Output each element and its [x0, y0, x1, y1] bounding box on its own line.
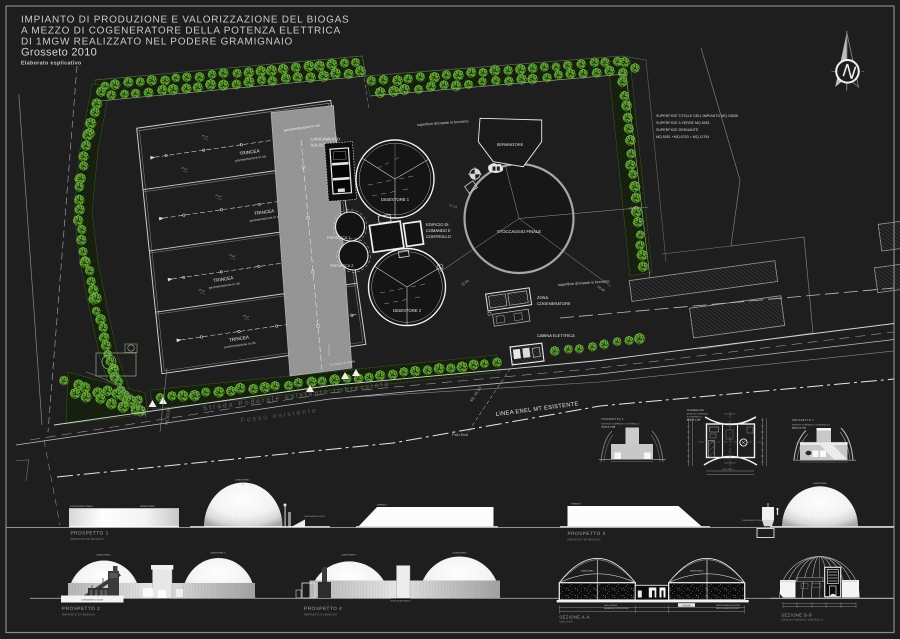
svg-text:EDIFICIO DI: EDIFICIO DI	[426, 222, 448, 227]
svg-text:COGENERATORE: COGENERATORE	[537, 301, 571, 306]
svg-text:SUPERFICIE A VERDE MQ.5051: SUPERFICIE A VERDE MQ.5051	[656, 121, 710, 125]
svg-text:DIGESTORE 1: DIGESTORE 1	[453, 552, 468, 555]
svg-text:ARIA INTERNA: ARIA INTERNA	[604, 604, 618, 607]
svg-text:DIGESTORE: DIGESTORE	[814, 482, 827, 485]
svg-text:MEMBRANA DOPPIA EPDM: MEMBRANA DOPPIA EPDM	[604, 607, 629, 610]
svg-text:CARICAMENTO: CARICAMENTO	[311, 137, 340, 142]
svg-text:IMPIANTO DI BIOGAS: IMPIANTO DI BIOGAS	[568, 537, 601, 541]
svg-text:PROSPETTO 3: PROSPETTO 3	[568, 531, 606, 536]
svg-text:SUPERFICIE TOTALE DELL'IMPIAN: SUPERFICIE TOTALE DELL'IMPIANTO MQ.20836	[656, 114, 738, 118]
svg-text:IMPIANTO DI BIOGAS: IMPIANTO DI BIOGAS	[71, 537, 104, 541]
svg-text:PROSPETTO 1: PROSPETTO 1	[71, 531, 109, 536]
svg-text:DIGESTORE 1: DIGESTORE 1	[722, 468, 734, 471]
svg-text:PROSPETTO 2: PROSPETTO 2	[62, 606, 100, 611]
svg-text:DIGESTORE 2: DIGESTORE 2	[211, 552, 226, 555]
svg-text:Grosseto 2010: Grosseto 2010	[21, 47, 97, 59]
svg-text:IMPIANTO DI BIOGAS: IMPIANTO DI BIOGAS	[304, 612, 337, 616]
svg-text:ZONA: ZONA	[537, 295, 548, 300]
svg-text:DIGESTORE 1: DIGESTORE 1	[97, 554, 112, 557]
svg-text:PLANIMETRIA: PLANIMETRIA	[687, 409, 705, 412]
svg-text:PROSPETTO 2: PROSPETTO 2	[602, 418, 624, 421]
svg-text:MQ.5051 +MQ.6703 = MQ.11754: MQ.5051 +MQ.6703 = MQ.11754	[656, 135, 709, 139]
svg-text:EDIFICIO COMANDO E CONTROLLO: EDIFICIO COMANDO E CONTROLLO	[602, 423, 640, 426]
svg-text:PROSPETTO 1: PROSPETTO 1	[792, 419, 814, 422]
svg-text:EDIFICIO COMANDO E CONTROLLO: EDIFICIO COMANDO E CONTROLLO	[781, 619, 822, 622]
svg-text:SEZIONE A-A: SEZIONE A-A	[559, 615, 590, 620]
svg-text:STOCCAGGIO FINALE: STOCCAGGIO FINALE	[70, 505, 94, 508]
svg-text:DIGESTORI: DIGESTORI	[559, 621, 572, 624]
svg-text:DIGESTORE 1: DIGESTORE 1	[724, 413, 736, 416]
svg-text:STOCCAGGIO FINALE: STOCCAGGIO FINALE	[391, 599, 412, 602]
svg-text:CARICAMENTO SOLIDI: CARICAMENTO SOLIDI	[742, 519, 763, 522]
svg-text:CARICAMENTO SOLIDI: CARICAMENTO SOLIDI	[304, 515, 325, 518]
svg-text:E CONTROLLO: E CONTROLLO	[687, 416, 703, 419]
svg-text:SEZIONE B-B: SEZIONE B-B	[781, 613, 812, 618]
svg-text:DIGESTORE 2: DIGESTORE 2	[342, 554, 357, 557]
svg-text:IMPIANTO DI BIOGAS: IMPIANTO DI BIOGAS	[62, 612, 95, 616]
svg-text:PROSPETTO 4: PROSPETTO 4	[304, 606, 342, 611]
svg-text:COMANDO E: COMANDO E	[426, 228, 451, 233]
svg-text:DIGESTORE 2: DIGESTORE 2	[724, 462, 736, 465]
svg-text:Palo Enel: Palo Enel	[452, 433, 468, 437]
svg-text:TRINCEA: TRINCEA	[571, 503, 581, 506]
svg-text:SCALA 1:100: SCALA 1:100	[792, 427, 806, 430]
svg-text:PREVASCA 2: PREVASCA 2	[330, 264, 353, 268]
svg-text:SOLIDI: SOLIDI	[311, 143, 324, 148]
svg-text:SUPERFICIE DRENANTE: SUPERFICIE DRENANTE	[656, 128, 699, 132]
svg-text:SEPARATORE: SEPARATORE	[140, 505, 155, 508]
svg-text:EDIFICIO COMANDO: EDIFICIO COMANDO	[687, 413, 709, 416]
svg-text:PREVASCA 1: PREVASCA 1	[327, 236, 350, 240]
svg-text:CONTROLLO: CONTROLLO	[426, 234, 451, 239]
svg-text:RISCALDAMENTO PARETI: RISCALDAMENTO PARETI	[716, 607, 740, 610]
svg-text:DIGESTORE 2: DIGESTORE 2	[690, 570, 704, 573]
svg-text:DIGESTORE 1: DIGESTORE 1	[581, 570, 595, 573]
svg-text:CABINA ELETTRICA: CABINA ELETTRICA	[537, 333, 575, 338]
svg-text:SEPARATORE: SEPARATORE	[497, 142, 524, 147]
svg-text:15,75: 15,75	[629, 206, 638, 211]
svg-text:LIQUAME: LIQUAME	[682, 604, 691, 607]
svg-text:CARICAMENTO SOLIDI: CARICAMENTO SOLIDI	[81, 599, 103, 602]
svg-text:STOCCAGGIO FINALE: STOCCAGGIO FINALE	[497, 229, 541, 234]
svg-text:SCALA 1:100: SCALA 1:100	[602, 426, 616, 429]
svg-text:Elaborato esplicativo: Elaborato esplicativo	[21, 60, 82, 66]
svg-text:TRINCEA: TRINCEA	[377, 504, 387, 507]
svg-text:MISCELATORE AGITATORE: MISCELATORE AGITATORE	[716, 604, 741, 607]
svg-text:DIGESTORE 2: DIGESTORE 2	[393, 308, 422, 313]
svg-text:EDIFICIO COMANDO E CONTROLLO: EDIFICIO COMANDO E CONTROLLO	[792, 424, 830, 427]
svg-text:DIGESTORE 1: DIGESTORE 1	[236, 479, 251, 482]
svg-text:A MEZZO DI COGENERATORE DELLA: A MEZZO DI COGENERATORE DELLA POTENZA EL…	[21, 25, 341, 36]
svg-text:IMPIANTO DI PRODUZIONE E VALOR: IMPIANTO DI PRODUZIONE E VALORIZZAZIONE …	[21, 14, 349, 25]
svg-text:DIGESTORE 1: DIGESTORE 1	[381, 197, 410, 202]
